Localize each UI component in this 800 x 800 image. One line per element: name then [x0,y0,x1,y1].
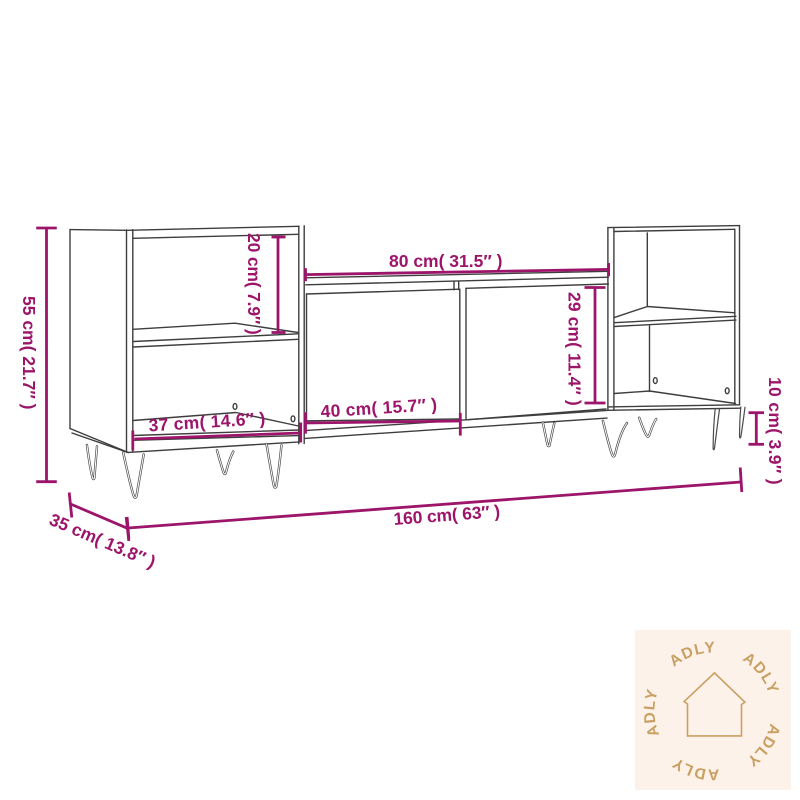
svg-text:10 cm( 3.9″ ): 10 cm( 3.9″ ) [765,377,785,485]
svg-text:80 cm( 31.5″ ): 80 cm( 31.5″ ) [389,251,502,271]
svg-text:55 cm( 21.7″ ): 55 cm( 21.7″ ) [19,296,39,409]
svg-text:29 cm( 11.4″ ): 29 cm( 11.4″ ) [565,292,585,406]
svg-text:20 cm( 7.9″ ): 20 cm( 7.9″ ) [244,233,264,335]
